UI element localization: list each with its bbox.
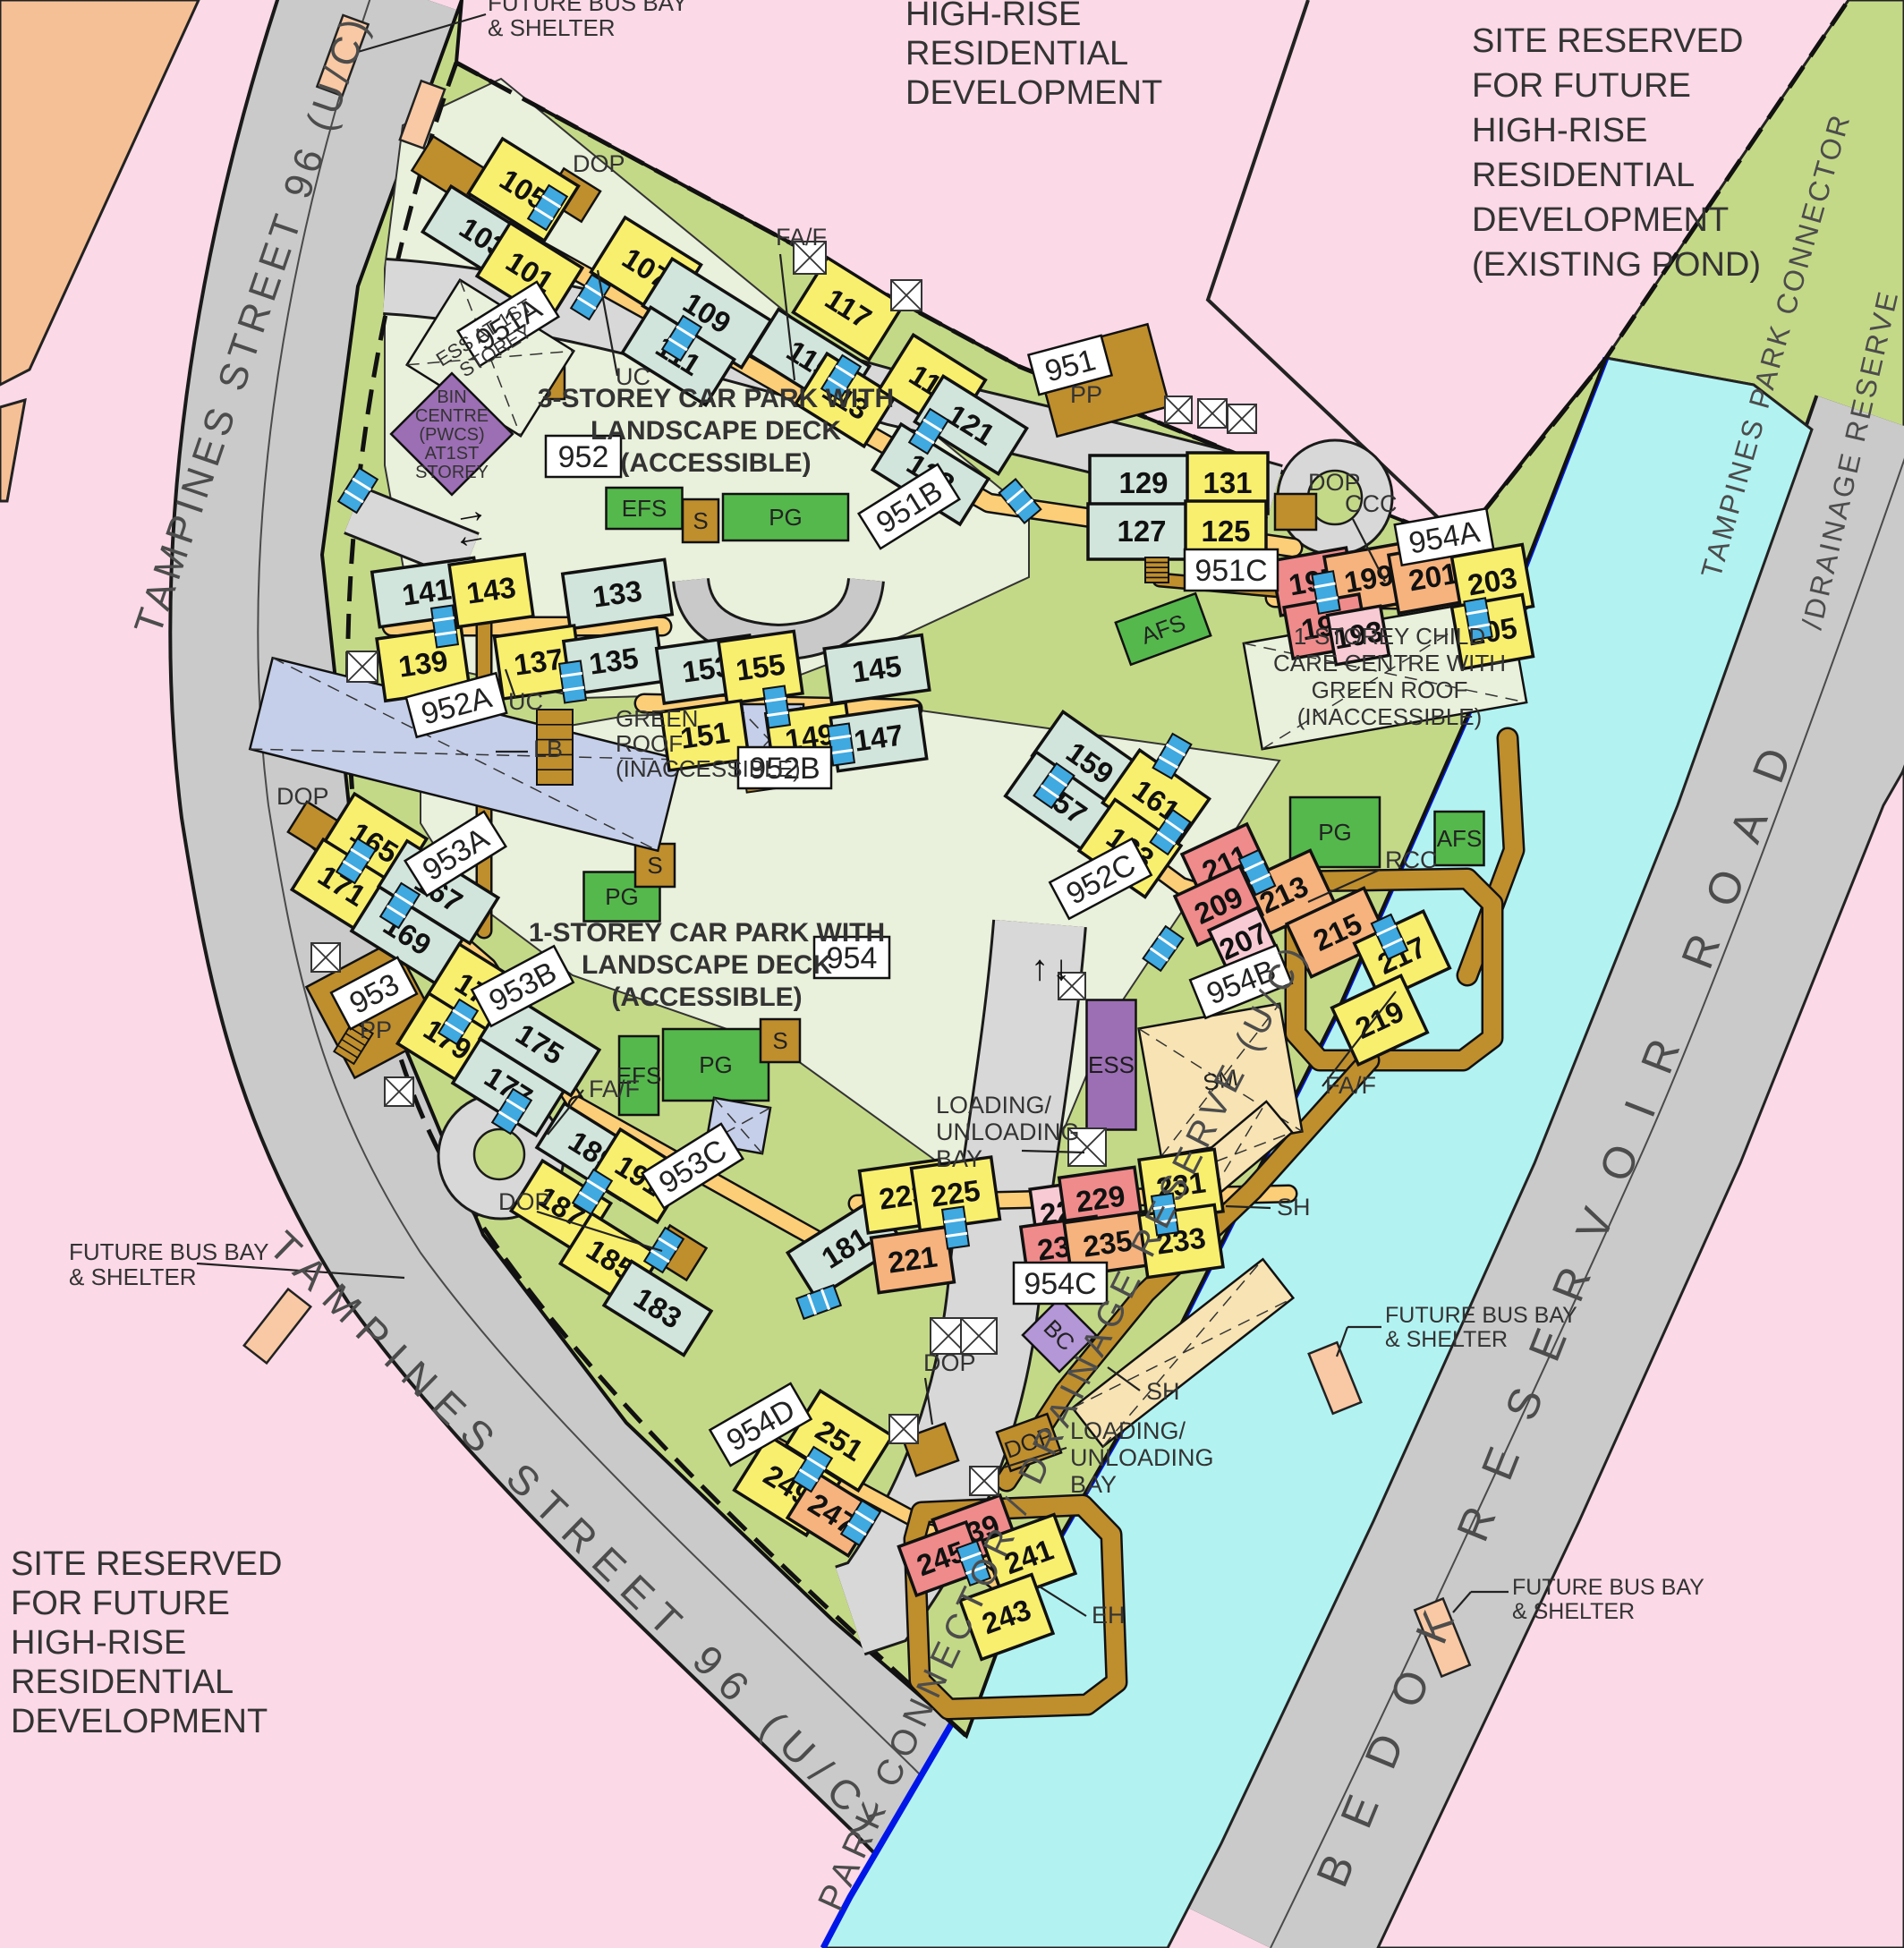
s-area-3-label: S [647, 852, 662, 879]
block-145: 145 [824, 635, 930, 704]
pg-area-1: PG [723, 494, 848, 540]
precinct-text-954C: 954C [1024, 1267, 1096, 1301]
s-area-2-label: S [693, 507, 708, 534]
stair-core-icon [431, 606, 458, 648]
label-lb: LB [533, 736, 563, 762]
afs-area-2: AFS [1435, 812, 1484, 865]
roundabout-sw-island [474, 1129, 524, 1179]
s-area-2: S [683, 499, 718, 542]
block-143: 143 [449, 554, 533, 626]
ess-room: ESS [1087, 1000, 1136, 1130]
crossing-icon [891, 280, 922, 310]
label-faf-1: FA/F [776, 224, 827, 251]
efs-area-1: EFS [607, 488, 683, 529]
s-area-4-label: S [772, 1027, 787, 1054]
label-sh-2: SH [1146, 1378, 1180, 1405]
label-faf-3: FA/F [589, 1076, 640, 1102]
pg-area-1-label: PG [769, 504, 803, 531]
stair-core-rect [559, 661, 586, 703]
pg-area-2-label: PG [1318, 819, 1352, 846]
ess-room-label: ESS [1088, 1051, 1135, 1078]
block-221: 221 [871, 1227, 955, 1292]
block-155: 155 [718, 631, 803, 703]
dop-shape-2 [1275, 494, 1316, 530]
crossing-icon [1198, 399, 1227, 428]
block-229-number: 229 [1074, 1178, 1127, 1218]
crossing-icon [970, 1467, 999, 1495]
traffic-arrow-icon: ↑ [1031, 948, 1049, 988]
crossing-icon [1228, 404, 1256, 433]
stairs-rect [1145, 557, 1169, 583]
crossing-icon [385, 1077, 413, 1106]
label-sh-1: SH [1277, 1194, 1311, 1221]
block-131-number: 131 [1203, 466, 1252, 499]
label-faf-2: FA/F [1325, 1072, 1376, 1099]
pg-area-4-label: PG [699, 1051, 733, 1078]
block-127: 127 [1088, 504, 1195, 559]
block-143-number: 143 [464, 570, 518, 609]
stairs-icon [1145, 557, 1169, 583]
label-ccc: CCC [1345, 490, 1398, 517]
stair-core-icon [942, 1207, 969, 1249]
crossing-icon [347, 651, 378, 682]
block-139-number: 139 [396, 643, 450, 683]
label-pp-1: PP [1070, 381, 1102, 408]
crossing-icon [889, 1415, 918, 1443]
block-145-number: 145 [850, 649, 904, 688]
block-155-number: 155 [734, 647, 787, 686]
label-dop-3: DOP [276, 783, 329, 810]
site-plan-map: { "title": "HDB precinct site plan — Tam… [0, 0, 1904, 1948]
dop-shape-2-shape [1275, 494, 1316, 530]
stair-core-icon [559, 661, 586, 703]
label-dop-4: DOP [498, 1188, 551, 1215]
label-eh: EH [1092, 1602, 1126, 1629]
stair-core-rect [763, 686, 790, 728]
pg-area-3-label: PG [605, 883, 639, 910]
crossing-icon [1165, 396, 1192, 423]
stair-core-rect [942, 1207, 969, 1249]
block-133-number: 133 [591, 574, 644, 613]
label-uc-1: UC [616, 363, 650, 390]
block-127-number: 127 [1117, 515, 1166, 548]
traffic-arrow-icon: ↓ [1052, 948, 1070, 988]
stair-core-icon [763, 686, 790, 728]
s-area-4: S [761, 1019, 800, 1062]
stair-core-rect [431, 606, 458, 648]
label-dop-5: DOP [923, 1349, 976, 1376]
block-137-number: 137 [512, 642, 565, 681]
label-pp-2: PP [360, 1017, 392, 1043]
crossing-icon [311, 943, 340, 972]
efs-area-1-label: EFS [622, 495, 667, 522]
crossing-icon [961, 1318, 997, 1354]
afs-area-2-label: AFS [1437, 825, 1483, 852]
precinct-label-951C: 951C [1185, 549, 1278, 591]
traffic-arrow-icon: ← [449, 513, 491, 557]
label-dop-1: DOP [573, 150, 625, 177]
label-uc-2: UC [508, 688, 543, 715]
block-221-number: 221 [886, 1239, 939, 1279]
block-147-number: 147 [852, 718, 905, 757]
block-129-number: 129 [1118, 466, 1168, 499]
precinct-label-954C: 954C [1014, 1263, 1107, 1304]
block-125-number: 125 [1201, 515, 1250, 548]
label-rcc: RCC [1385, 846, 1438, 873]
block-135-number: 135 [587, 641, 641, 680]
pg-area-4: PG [663, 1029, 769, 1101]
precinct-text-951C: 951C [1194, 554, 1267, 588]
